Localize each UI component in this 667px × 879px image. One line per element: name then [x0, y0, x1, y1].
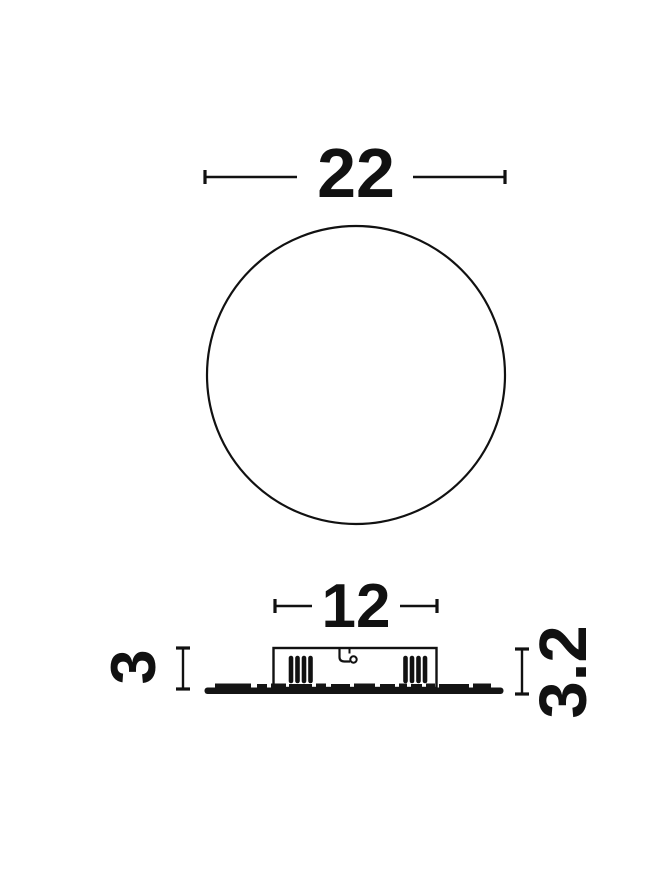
diameter-dimension: 22 — [205, 134, 505, 212]
dimension-drawing-page: 22 12 — [0, 0, 667, 879]
top-view-circle — [207, 226, 505, 524]
housing-height-dimension: 3 — [99, 648, 190, 689]
left-vent-grille — [291, 658, 311, 681]
dimension-drawing: 22 12 — [0, 0, 667, 879]
housing-height-dimension-label: 3 — [99, 649, 169, 684]
right-vent-grille — [406, 658, 426, 681]
mounting-clip — [340, 649, 357, 663]
overall-height-dimension: 3.2 — [515, 625, 601, 718]
panel-plate — [205, 688, 504, 695]
overall-height-dimension-label: 3.2 — [526, 625, 601, 718]
diameter-dimension-label: 22 — [317, 134, 395, 212]
housing-width-dimension: 12 — [275, 572, 437, 641]
housing-width-dimension-label: 12 — [322, 572, 391, 641]
